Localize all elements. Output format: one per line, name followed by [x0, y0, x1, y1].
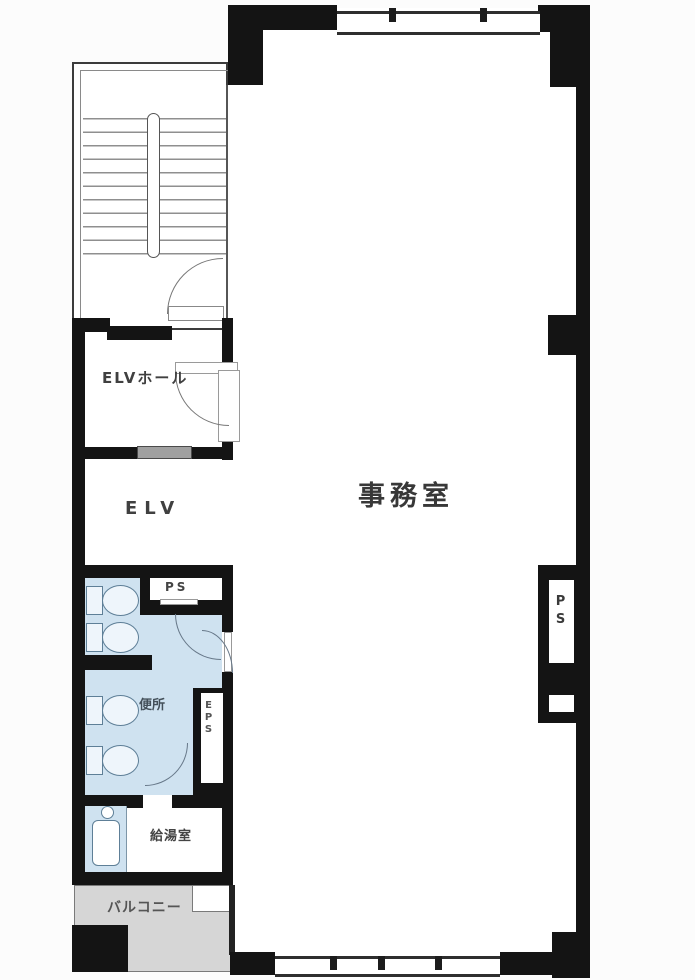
kitchen-faucet	[101, 806, 114, 819]
toilet-fixture	[86, 695, 140, 727]
stair-handrail	[147, 113, 160, 258]
wall-segment	[192, 447, 233, 459]
ps-door	[160, 599, 198, 605]
wall-segment	[85, 447, 137, 459]
toilet-fixture	[86, 622, 140, 654]
toilet-tank	[86, 696, 103, 725]
wall-segment	[72, 565, 233, 578]
label-elv: ELV	[125, 498, 181, 519]
toilet-fixture	[86, 745, 140, 777]
wall-right	[576, 28, 590, 975]
wall-segment	[228, 30, 263, 85]
label-balcony: バルコニー	[107, 897, 182, 917]
wall-segment	[228, 5, 337, 30]
toilet-bowl	[102, 622, 139, 653]
toilet-tank	[86, 586, 103, 615]
toilet-fixture	[86, 585, 140, 617]
label-eps: EPS	[203, 700, 214, 736]
wall-corner-block	[552, 932, 590, 978]
label-ps-right: PS	[553, 594, 568, 630]
wall-pier	[548, 315, 578, 355]
wall-segment	[229, 885, 235, 955]
balcony-step	[192, 886, 232, 912]
toilet-bowl	[102, 745, 139, 776]
label-elv-hall: ELVホール	[102, 367, 188, 388]
toilet-tank	[86, 746, 103, 775]
wall-corner-block	[72, 925, 128, 972]
floor-plan: 事務室 ELVホール ELV PS 便所 EPS 給湯室 バルコニー PS	[0, 0, 695, 980]
stair-office-partition	[226, 85, 228, 318]
wall-segment	[72, 318, 110, 332]
window-mullion	[378, 956, 385, 970]
label-ps-upper: PS	[165, 580, 188, 594]
label-office: 事務室	[358, 474, 468, 513]
window-mullion	[330, 956, 337, 970]
kitchen-sink	[92, 820, 120, 866]
wall-segment	[500, 952, 555, 975]
window-mullion	[480, 8, 487, 22]
toilet-bowl	[102, 695, 139, 726]
window-band-top	[337, 11, 540, 35]
label-toilet: 便所	[139, 694, 165, 713]
window-mullion	[435, 956, 442, 970]
wall-segment	[72, 872, 233, 885]
window-mullion	[389, 8, 396, 22]
toilet-tank	[86, 623, 103, 652]
wall-segment	[230, 952, 275, 975]
window-band-bottom	[275, 956, 500, 977]
kitchen-door-opening	[143, 795, 172, 808]
wall-segment	[222, 578, 233, 632]
wall-segment	[107, 326, 172, 340]
toilet-bowl	[102, 585, 139, 616]
wall-segment	[222, 318, 233, 365]
wall-stall-divider	[80, 655, 152, 670]
ps-right-slot	[549, 695, 574, 712]
elevator-door	[137, 446, 192, 459]
stair-door-leaf	[168, 306, 224, 321]
label-kitchenette: 給湯室	[150, 825, 192, 844]
